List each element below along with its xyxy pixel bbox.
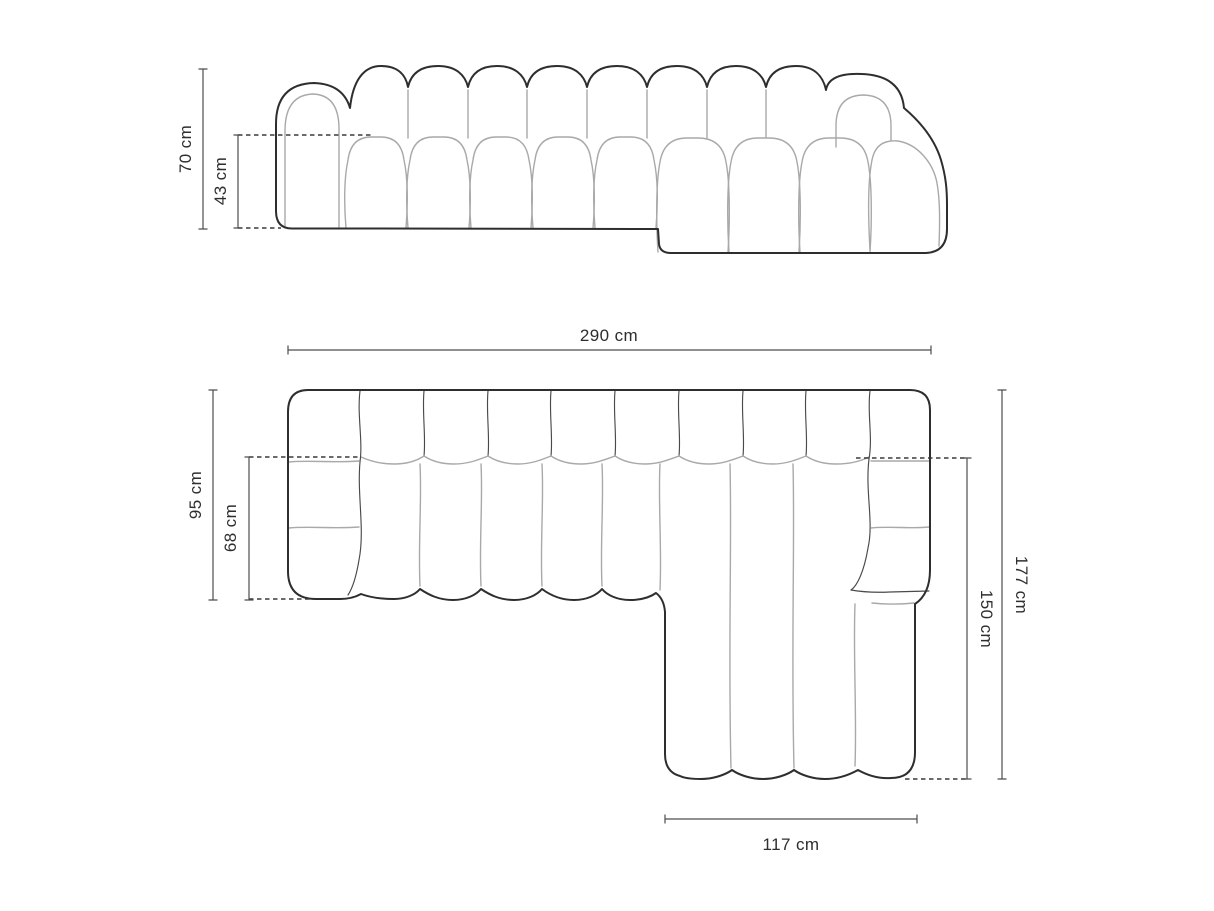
label-height-seat: 43 cm (211, 157, 230, 205)
label-depth-body: 95 cm (186, 471, 205, 519)
label-width-chaise: 117 cm (763, 835, 820, 854)
label-depth-chaise: 150 cm (977, 590, 996, 648)
left-arm-seam-upper (289, 461, 359, 462)
dimension-depth-body: 95 cm (186, 390, 218, 600)
dimension-width-total: 290 cm (288, 326, 931, 355)
dimension-height-total: 70 cm (176, 69, 208, 229)
label-width-total: 290 cm (580, 326, 638, 345)
sofa-plan-body-fill (288, 390, 930, 779)
left-arm-seam-lower (289, 527, 359, 528)
sofa-dimension-diagram: 70 cm 43 cm (0, 0, 1214, 911)
label-depth-total: 177 cm (1012, 556, 1031, 614)
front-elevation-view: 70 cm 43 cm (176, 66, 947, 253)
right-arm-seam-lower (871, 527, 929, 528)
dimension-width-chaise: 117 cm (665, 815, 917, 855)
top-plan-view: 290 cm 95 cm 68 cm 150 cm 17 (186, 326, 1031, 854)
dimension-depth-total: 177 cm (998, 390, 1032, 779)
label-height-total: 70 cm (176, 125, 195, 173)
diagram-canvas: 70 cm 43 cm (0, 0, 1214, 911)
label-depth-seat: 68 cm (221, 504, 240, 552)
sofa-front-body-fill (276, 66, 947, 253)
